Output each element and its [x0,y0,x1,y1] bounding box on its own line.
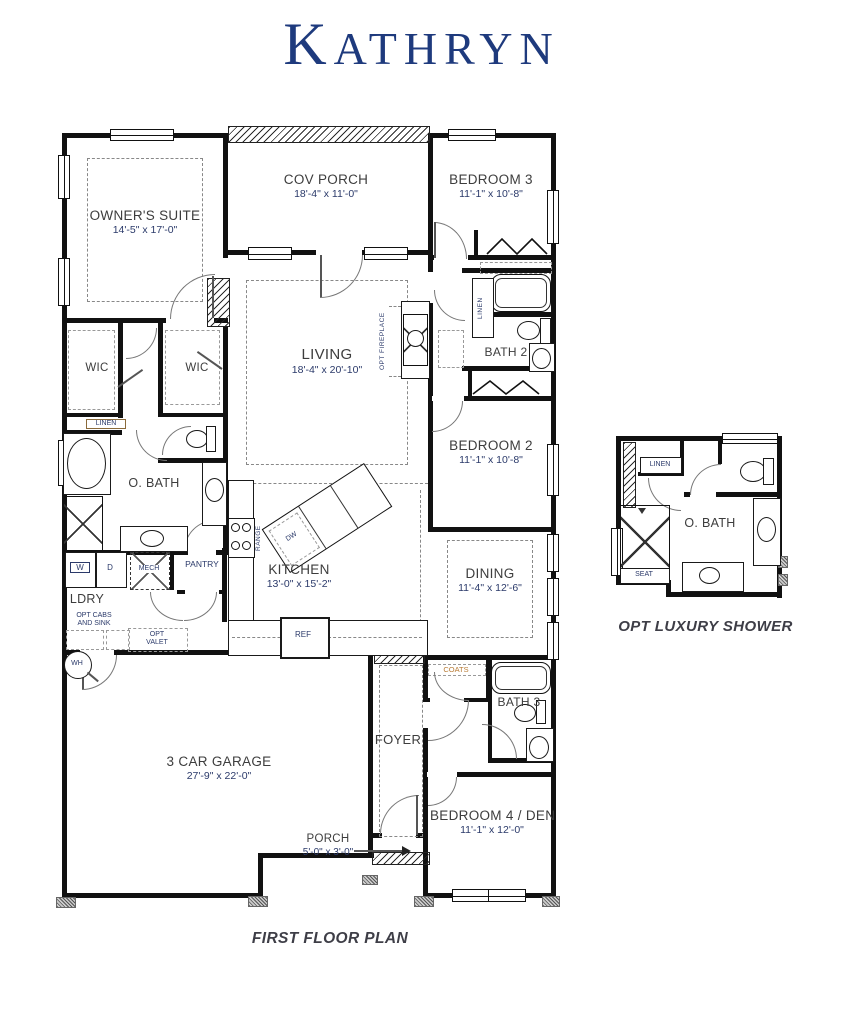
floor-plan-sheet: Kathryn [0,0,843,1024]
footing-pad [56,897,76,908]
shower-icon [63,496,103,552]
room-name: BEDROOM 2 [430,438,552,454]
opt-cabs-label: OPT CABS AND SINK [66,612,122,628]
porch-roof-hatch [228,126,430,143]
dryer-label: D [101,563,119,572]
toilet-tank [206,426,216,452]
room-dims: 5'-0" x 3'-0" [294,847,362,859]
wall [62,893,263,898]
room-label-bedroom3: BEDROOM 3 11'-1" x 10'-8" [434,172,548,201]
sink-icon [699,567,720,584]
plan-caption: FIRST FLOOR PLAN [240,930,420,948]
footing-pad [414,896,434,907]
wall [158,323,163,415]
window [448,129,496,141]
room-dims: 18'-4" x 11'-0" [270,188,382,201]
water-heater-label: WH [64,660,90,668]
wall [258,853,263,898]
wall-hatch [623,442,636,508]
wall [616,436,621,514]
door-arc [434,672,469,701]
room-dims: 11'-4" x 12'-6" [443,582,537,595]
footing-pad [778,574,788,586]
room-dims: 18'-4" x 20'-10" [266,364,388,377]
wall [551,133,556,898]
sink-icon [529,736,549,759]
wall [490,312,552,317]
window [722,433,778,444]
refrigerator-label: REF [280,630,326,639]
bifold-door-icon [486,236,548,256]
room-label-owners-suite: OWNER'S SUITE 14'-5" x 17'-0" [85,208,205,237]
door-arc [184,592,217,621]
sink-icon [140,530,164,547]
burner-icon [231,541,240,550]
opt-cabinet-dashed [66,630,104,650]
footing-pad [362,875,378,885]
fireplace-bracket [389,376,401,377]
bathtub-icon [67,438,106,489]
footing-pad [542,896,560,907]
room-name: O. BATH [678,516,742,531]
room-label-pantry: PANTRY [180,560,224,570]
linen-label: LINEN [641,461,679,469]
linen-label: LINEN [477,288,484,328]
wall [428,527,556,532]
door-arc [434,290,465,321]
room-name: 3 CAR GARAGE [140,754,298,770]
opt-cabs-line2: AND SINK [66,620,122,628]
washer-label: W [70,562,90,573]
room-dims: 13'-0" x 15'-2" [240,578,358,591]
door-leaf [320,255,322,297]
room-name: LDRY [64,592,110,607]
room-name: O. BATH [124,476,184,491]
opt-valet-line1: OPT [132,631,182,639]
door-leaf [416,795,418,835]
door-arc [690,464,721,495]
attic-access-dashed [438,330,464,368]
room-label-bedroom4: BEDROOM 4 / DEN 11'-1" x 12'-0" [430,808,554,837]
room-name: LIVING [266,346,388,364]
toilet-tank [763,458,774,485]
wall [118,323,123,418]
room-label-cov-porch: COV PORCH 18'-4" x 11'-0" [270,172,382,201]
door-arc [434,222,467,259]
room-name: WIC [180,362,214,376]
door-leaf [212,276,214,318]
wall [666,592,782,597]
window [110,129,174,141]
wall [428,133,433,260]
room-dims: 27'-9" x 22'-0" [140,770,298,783]
porch-step-hatch [372,852,430,865]
seat-label: SEAT [621,571,667,579]
kitchen-island: DW [262,463,393,573]
fireplace-flue [407,330,424,347]
door-arc [428,700,469,741]
door-arc [126,328,157,359]
bathtub-icon [491,662,551,694]
room-label-foyer: FOYER [372,732,424,748]
wall [428,250,433,272]
range-label: RANGE [255,520,262,556]
room-label-kitchen: KITCHEN 13'-0" x 15'-2" [240,562,358,591]
opt-fireplace-label: OPT FIREPLACE [379,306,386,376]
plan-title: Kathryn [0,10,843,79]
opt-valet-line2: VALET [132,639,182,647]
wall [158,413,228,417]
room-label-porch: PORCH 5'-0" x 3'-0" [294,833,362,859]
wall [62,413,122,417]
opt-cabinet-dashed [106,630,130,650]
room-label-inset-obath: O. BATH [678,516,742,531]
opt-valet-label: OPT VALET [132,631,182,647]
window [364,247,408,260]
door-arc [432,401,463,432]
room-name: FOYER [372,732,424,748]
footing-pad [248,896,268,907]
sink-icon [757,517,776,542]
room-label-garage: 3 CAR GARAGE 27'-9" x 22'-0" [140,754,298,783]
room-name: PORCH [294,833,362,847]
room-name: DINING [443,566,537,582]
door-leaf [434,222,436,258]
wall [170,550,174,590]
window [58,258,70,306]
room-name: OWNER'S SUITE [85,208,205,224]
wall [223,133,228,258]
fireplace-bracket [389,306,401,307]
room-dims: 11'-1" x 10'-8" [430,454,552,467]
door-arc [136,430,167,461]
window [248,247,292,260]
room-label-bedroom2: BEDROOM 2 11'-1" x 10'-8" [430,438,552,467]
window [452,889,490,902]
room-label-bath3: BATH 3 [490,695,548,709]
entry-arrow-icon [402,846,411,856]
mech-label: MECH [131,565,167,573]
room-dims: 11'-1" x 10'-8" [434,188,548,201]
room-name: BEDROOM 4 / DEN [430,808,554,824]
door-arc [150,592,183,621]
room-label-bath2: BATH 2 [481,345,531,359]
closet-shelf-dashed [480,262,552,274]
room-name: KITCHEN [240,562,358,578]
sink-icon [532,348,551,369]
room-name: COV PORCH [270,172,382,188]
linen-label: LINEN [86,419,126,429]
room-label-wic-left: WIC [80,362,114,376]
room-name: BATH 3 [490,695,548,709]
room-dims: 11'-1" x 12'-0" [430,824,554,837]
room-name: WIC [80,362,114,376]
door-arc [428,777,457,806]
window [547,578,559,616]
room-dims: 14'-5" x 17'-0" [85,224,205,237]
floor-transition-dashed [228,483,428,484]
room-label-owners-bath: O. BATH [124,476,184,491]
window [58,155,70,199]
room-name: BATH 2 [481,345,531,359]
sink-icon [205,478,224,502]
toilet-icon [517,321,540,340]
coats-label: COATS [430,666,482,675]
door-arc [482,724,517,759]
wall [474,230,478,260]
burner-icon [242,523,251,532]
window [547,622,559,660]
burner-icon [242,541,251,550]
wall [62,318,166,323]
room-name: BEDROOM 3 [434,172,548,188]
room-label-wic-right: WIC [180,362,214,376]
opt-cabs-line1: OPT CABS [66,612,122,620]
inset-caption: OPT LUXURY SHOWER [608,618,803,635]
burner-icon [231,523,240,532]
toilet-tank [540,318,551,344]
window [547,190,559,244]
toilet-icon [186,430,208,448]
bifold-door-icon [472,378,540,396]
room-label-laundry: LDRY [64,592,110,607]
shower-head-icon [638,508,646,514]
room-label-dining: DINING 11'-4" x 12'-6" [443,566,537,595]
room-label-living: LIVING 18'-4" x 20'-10" [266,346,388,377]
window [547,534,559,572]
window [488,889,526,902]
bathtub-icon [491,274,551,312]
